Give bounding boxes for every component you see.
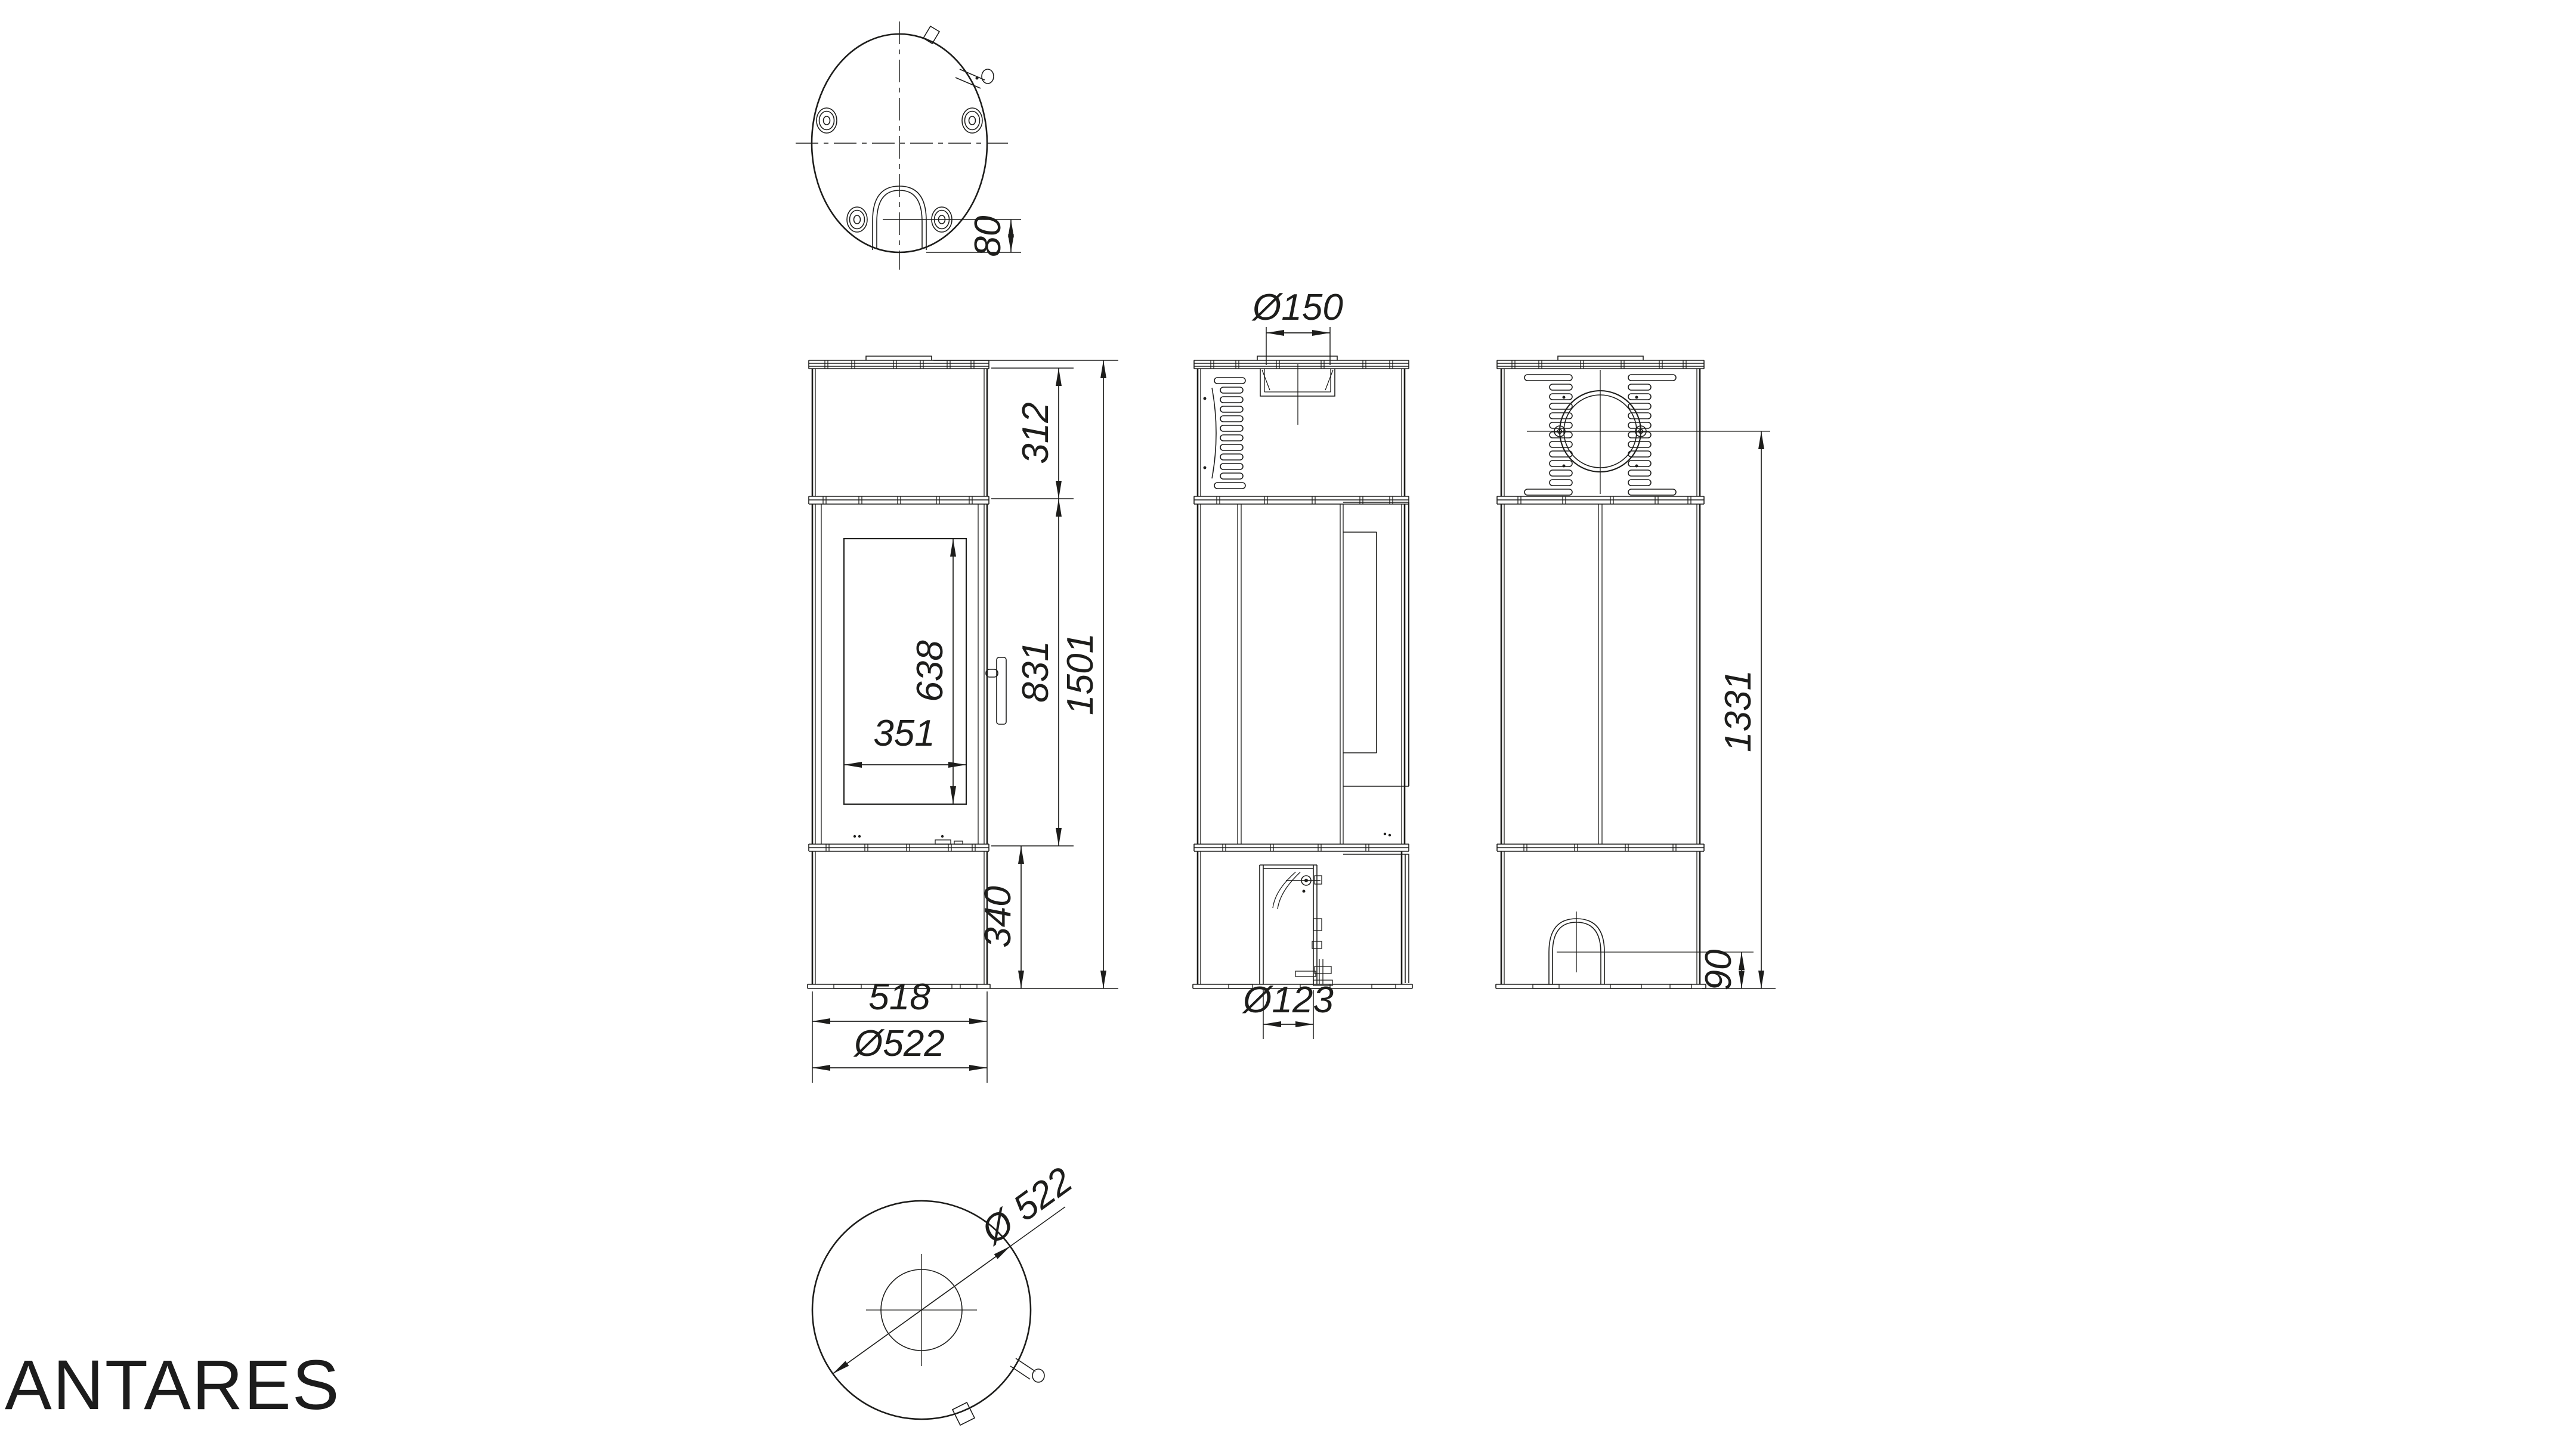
- upper-section-sides: [812, 369, 987, 496]
- bottom-view: Ø 522: [812, 1160, 1080, 1425]
- dim-body-diameter: Ø522: [812, 1023, 987, 1068]
- top-view: 80: [796, 21, 1021, 270]
- top-plate: [1194, 356, 1409, 369]
- separator-band-lower: [809, 835, 989, 851]
- dim-glass-height-label: 638: [910, 640, 951, 702]
- dim-intake-diameter-label: Ø123: [1242, 980, 1334, 1021]
- dim-base-height-label: 340: [978, 886, 1019, 947]
- air-intake-recess: [1260, 865, 1332, 985]
- top-plate: [809, 356, 989, 369]
- drawing-sheet: 80: [0, 0, 2576, 1449]
- dim-flue-axis-height: 1331: [1702, 431, 1776, 988]
- dim-body-diameter-label: Ø522: [853, 1023, 945, 1064]
- technical-drawing: 80: [0, 0, 2576, 1449]
- dim-footprint-diameter: Ø 522: [833, 1160, 1080, 1374]
- dim-intake-axis-height-label: 90: [1698, 950, 1739, 991]
- dim-door-section-height-label: 831: [1015, 641, 1056, 702]
- dim-intake-diameter: Ø123: [1242, 980, 1334, 1039]
- dim-flue-diameter-label: Ø150: [1251, 287, 1343, 328]
- door-handle: [986, 657, 1006, 724]
- dim-footprint-diameter-label: Ø 522: [973, 1160, 1080, 1253]
- base-section-sides: [1198, 851, 1402, 984]
- handle-pin: [955, 69, 994, 88]
- dim-body-width-label: 518: [868, 977, 930, 1018]
- handle-pin: [1010, 1358, 1044, 1382]
- dim-total-height-label: 1501: [1060, 633, 1101, 715]
- dim-intake-axis-height: 90: [1698, 950, 1742, 991]
- storage-door-profile: [1343, 854, 1409, 983]
- separator-band-upper: [1194, 496, 1409, 504]
- base-plate: [1496, 984, 1706, 988]
- door-edge-profile: [1343, 502, 1409, 836]
- dim-upper-section-height-label: 312: [1015, 402, 1056, 464]
- middle-section-sides: [1501, 504, 1700, 844]
- separator-band-upper: [1497, 496, 1704, 504]
- front-view: 638 351 312 831 340 1501 518: [808, 356, 1118, 1083]
- back-view: 90 1331: [1496, 356, 1776, 990]
- separator-band-upper: [809, 496, 989, 504]
- side-view: Ø150: [1193, 287, 1412, 1039]
- dim-glass-width-label: 351: [873, 713, 935, 754]
- dim-foot-offset-label: 80: [967, 216, 1009, 257]
- upper-section-sides: [1198, 369, 1405, 496]
- rear-vent-slots: [1204, 378, 1246, 489]
- top-plate: [1497, 356, 1704, 369]
- flue-collar: [1260, 364, 1335, 425]
- dim-flue-axis-height-label: 1331: [1718, 670, 1759, 752]
- separator-band-lower: [1497, 844, 1704, 851]
- product-title: ANTARES: [5, 1346, 341, 1425]
- door-section-sides: [812, 504, 987, 844]
- dim-flue-diameter: Ø150: [1251, 287, 1343, 365]
- dim-glass-width: 351: [844, 713, 966, 765]
- dim-upper-section-height: 312: [991, 368, 1074, 499]
- middle-section-sides: [1198, 504, 1405, 844]
- base-section-sides: [812, 851, 987, 984]
- separator-band-lower: [1194, 844, 1409, 851]
